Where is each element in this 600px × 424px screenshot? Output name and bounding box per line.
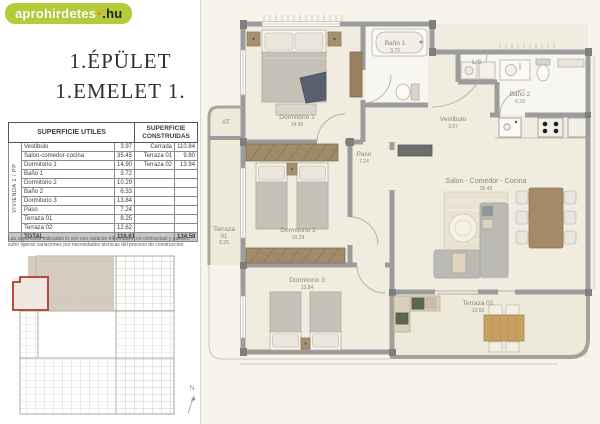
room-label-at: AT (222, 119, 230, 127)
room-label-vestibulo: Vestibulo3.97 (440, 116, 466, 130)
wardrobe-dormitorio2-top (246, 144, 338, 161)
page: aprohirdetes ▪ .hu 1.ÉPÜLET 1.EMELET 1. … (0, 0, 600, 424)
room-label-dormitorio1: Dormitorio 114.90 (279, 114, 314, 128)
toilet-icon-bath2 (536, 59, 550, 81)
room-label-dormitorio3: Dormitorio 313.84 (289, 277, 324, 291)
room-label-bano1: Baño 13.72 (385, 40, 406, 54)
room-label-salon: Salon - Comedor - Cocina35.45 (446, 178, 527, 192)
room-label-terraza01: Terraza 01 8.25 (213, 226, 235, 246)
tv-sideboard (398, 145, 432, 156)
dining-table (516, 188, 576, 248)
toilet-icon-bath1 (396, 84, 419, 100)
wardrobe-dormitorio1 (350, 52, 362, 97)
wardrobe-dormitorio2-bottom (246, 248, 345, 263)
fridge-icon (568, 118, 586, 137)
bath2-shelf (558, 59, 584, 67)
kitchen-sink-icon (499, 118, 521, 137)
room-label-dormitorio2: Dormitorio 210.29 (280, 227, 315, 241)
sink-icon-bath2 (500, 60, 530, 80)
round-rug (449, 214, 477, 242)
room-label-ls: L/S (472, 59, 482, 67)
stove-icon (538, 118, 563, 137)
site-key-plan (8, 254, 193, 418)
highlighted-unit-outline (13, 277, 48, 310)
room-label-bano2: Baño 26.33 (510, 91, 531, 105)
north-label: N (189, 385, 194, 393)
room-label-paso: Paso7.24 (357, 151, 372, 165)
room-label-terraza02: Terraza 0212.62 (463, 300, 494, 314)
